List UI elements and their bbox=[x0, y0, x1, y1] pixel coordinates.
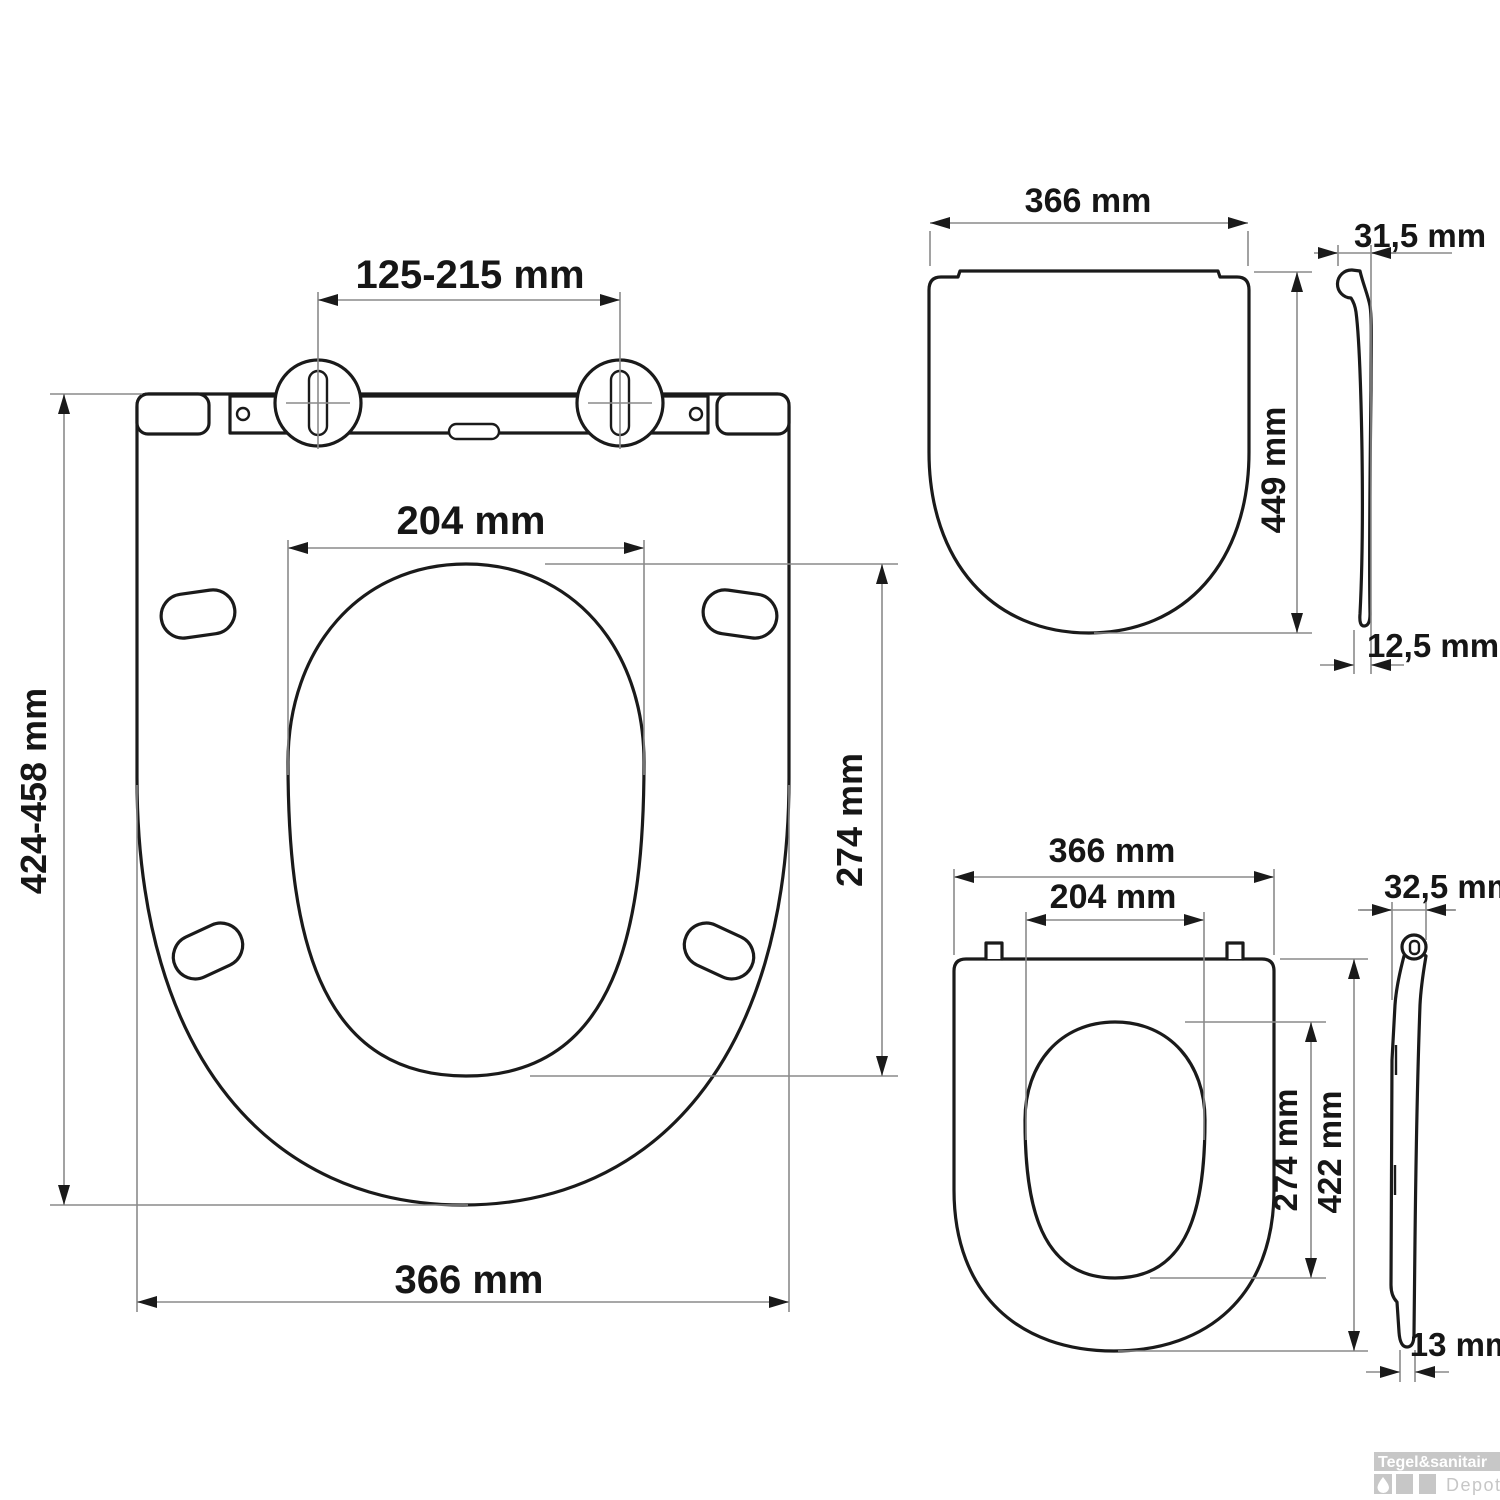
watermark-box-2 bbox=[1396, 1474, 1413, 1494]
diagram-canvas: 125-215 mm 204 mm 274 mm 424-458 mm 366 … bbox=[0, 0, 1500, 1500]
hinge-pin-left bbox=[237, 408, 249, 420]
watermark-box-3 bbox=[1419, 1474, 1436, 1494]
dim-label-ring-opening-depth: 274 mm bbox=[1267, 1089, 1304, 1212]
seat-ring-opening bbox=[1025, 1022, 1205, 1278]
dim-label-ring-opening-width: 204 mm bbox=[1050, 878, 1177, 916]
watermark: Tegel&sanitair Depot bbox=[1374, 1452, 1500, 1495]
view-seat-open-top: 125-215 mm 204 mm 274 mm 424-458 mm 366 … bbox=[13, 253, 898, 1312]
hinge-cap-right bbox=[717, 394, 789, 434]
watermark-sub-text: Depot bbox=[1446, 1475, 1500, 1495]
seat-ring-profile bbox=[1391, 952, 1426, 1348]
dim-label-length-range: 424-458 mm bbox=[13, 688, 54, 894]
dim-label-opening-depth: 274 mm bbox=[829, 753, 870, 887]
dim-label-lid-front-thickness: 12,5 mm bbox=[1367, 627, 1499, 664]
hinge-pin-slot bbox=[1410, 941, 1419, 954]
dim-label-outer-width: 366 mm bbox=[395, 1258, 544, 1302]
watermark-brand-text: Tegel&sanitair bbox=[1378, 1454, 1487, 1471]
dim-label-hinge-spacing: 125-215 mm bbox=[355, 253, 584, 297]
dim-label-ring-width: 366 mm bbox=[1049, 832, 1176, 870]
dim-label-lid-length: 449 mm bbox=[1255, 407, 1293, 534]
lid-outline bbox=[929, 271, 1249, 633]
dim-label-ring-hinge-height: 32,5 mm bbox=[1384, 868, 1500, 905]
seat-opening bbox=[288, 564, 644, 1076]
dim-label-ring-length: 422 mm bbox=[1311, 1091, 1348, 1214]
hinge-pin-right bbox=[690, 408, 702, 420]
dim-label-lid-hinge-height: 31,5 mm bbox=[1354, 217, 1486, 254]
seat-ring-tab-left bbox=[986, 943, 1002, 959]
lid-profile bbox=[1337, 270, 1371, 626]
seat-ring-tab-right bbox=[1227, 943, 1243, 959]
dim-label-ring-front-thickness: 13 mm bbox=[1410, 1326, 1500, 1363]
view-seat-ring-side: 32,5 mm 13 mm bbox=[1358, 868, 1500, 1382]
view-lid-closed-top: 366 mm 449 mm bbox=[929, 182, 1312, 633]
dim-label-lid-width: 366 mm bbox=[1025, 182, 1152, 220]
view-seat-ring-top: 366 mm 204 mm 274 mm 422 mm bbox=[954, 832, 1368, 1351]
view-lid-side: 31,5 mm 12,5 mm bbox=[1314, 217, 1499, 674]
hinge-cap-left bbox=[137, 394, 209, 434]
hinge-center-notch bbox=[449, 424, 499, 439]
dim-label-opening-width: 204 mm bbox=[397, 499, 546, 543]
